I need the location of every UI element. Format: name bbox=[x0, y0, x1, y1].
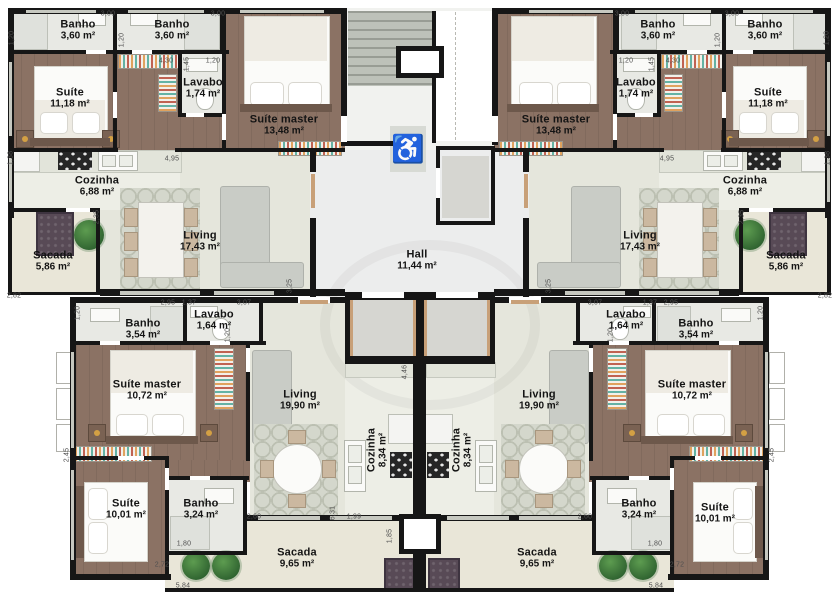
door-opening bbox=[341, 116, 347, 142]
dimension-label: 3,00 bbox=[615, 11, 629, 18]
pillow bbox=[693, 414, 725, 436]
wall bbox=[8, 292, 102, 295]
sofa bbox=[571, 186, 621, 268]
wall bbox=[310, 218, 316, 297]
dimension-label: 1,20 bbox=[225, 328, 232, 342]
dimension-label: 1,20 bbox=[824, 31, 831, 45]
elevator-car bbox=[427, 300, 487, 356]
chair bbox=[184, 258, 198, 277]
sink-basin bbox=[348, 445, 362, 463]
chair bbox=[288, 494, 306, 508]
dimension-label: 2,45 bbox=[769, 448, 776, 462]
window bbox=[128, 10, 204, 13]
door-opening bbox=[670, 468, 674, 490]
wall bbox=[657, 52, 661, 117]
stove bbox=[427, 452, 449, 478]
elevator-jamb bbox=[413, 300, 416, 356]
tree bbox=[182, 552, 210, 580]
pillow bbox=[72, 112, 100, 134]
wall bbox=[668, 574, 769, 580]
dimension-label: 1,45 bbox=[184, 57, 191, 71]
bed-headboard bbox=[240, 104, 332, 112]
dining-table bbox=[519, 444, 569, 494]
pillow bbox=[733, 488, 753, 520]
elevator-door bbox=[436, 292, 478, 298]
wall bbox=[165, 551, 247, 555]
dimension-label: 1,20 bbox=[758, 306, 765, 320]
dimension-label: 1,38 bbox=[825, 151, 832, 165]
chair bbox=[505, 460, 519, 478]
wall bbox=[721, 148, 831, 152]
room-label-tr-suite-master: Suíte master13,48 m² bbox=[522, 113, 590, 136]
shower bbox=[12, 12, 48, 50]
wall bbox=[165, 588, 421, 592]
nightstand bbox=[735, 424, 753, 442]
chair bbox=[535, 494, 553, 508]
door-opening bbox=[436, 168, 440, 198]
chair bbox=[567, 460, 581, 478]
wall bbox=[436, 221, 495, 225]
dining-table bbox=[657, 202, 703, 278]
pillow bbox=[771, 112, 799, 134]
wall bbox=[178, 52, 182, 117]
wall bbox=[592, 480, 596, 552]
door-opening bbox=[190, 476, 210, 480]
door-opening bbox=[589, 348, 593, 372]
sink-basin bbox=[119, 155, 133, 167]
sink-basin bbox=[479, 445, 493, 463]
door-opening bbox=[246, 348, 250, 372]
sink-basin bbox=[707, 155, 721, 167]
pillow bbox=[40, 112, 68, 134]
tree bbox=[212, 552, 240, 580]
stove bbox=[58, 151, 92, 170]
room-label-tr-sacada: Sacada5,86 m² bbox=[766, 249, 806, 272]
dimension-label: 2,60 bbox=[578, 514, 592, 521]
window bbox=[765, 470, 768, 560]
duct-shaft bbox=[399, 514, 441, 554]
dimension-label: 3,07 bbox=[237, 300, 251, 307]
room-label-br-cozinha: Cozinha8,34 m² bbox=[450, 428, 473, 472]
tree bbox=[599, 552, 627, 580]
door-opening bbox=[86, 50, 106, 54]
wardrobe bbox=[607, 348, 627, 410]
door-opening bbox=[492, 116, 498, 142]
dimension-label: 3,25 bbox=[287, 279, 294, 293]
dimension-label: 4,46 bbox=[402, 365, 409, 379]
window bbox=[240, 10, 324, 13]
door bbox=[300, 300, 328, 304]
dimension-label: 1,38 bbox=[8, 151, 15, 165]
dimension-label: 1,20 bbox=[715, 33, 722, 47]
room-label-tr-suite: Suíte11,18 m² bbox=[748, 86, 787, 109]
nightstand bbox=[88, 424, 106, 442]
chair bbox=[535, 430, 553, 444]
dimension-label: 3,00 bbox=[101, 11, 115, 18]
door-opening bbox=[186, 113, 204, 117]
window bbox=[447, 516, 509, 520]
sink-basin bbox=[479, 466, 493, 484]
chair bbox=[124, 258, 138, 277]
room-label-tl-living: Living17,43 m² bbox=[180, 229, 220, 252]
dimension-label: 1,20 bbox=[608, 328, 615, 342]
dimension-label: 2,82 bbox=[818, 293, 832, 300]
room-label-tl-suite-master: Suíte master13,48 m² bbox=[250, 113, 318, 136]
door-opening bbox=[66, 208, 90, 212]
window-box bbox=[769, 388, 785, 420]
wall bbox=[523, 218, 529, 297]
planter bbox=[428, 558, 460, 592]
pillow bbox=[250, 82, 284, 106]
dining-table bbox=[272, 444, 322, 494]
sink-basin bbox=[724, 155, 738, 167]
door-opening bbox=[132, 50, 152, 54]
chair bbox=[288, 430, 306, 444]
wall bbox=[183, 303, 187, 343]
chair bbox=[124, 208, 138, 227]
pillow bbox=[657, 414, 689, 436]
sink-basin bbox=[102, 155, 116, 167]
chair bbox=[124, 232, 138, 251]
bed-blanket bbox=[512, 17, 594, 61]
room-label-br-suite-master: Suíte master10,72 m² bbox=[658, 378, 726, 401]
wall bbox=[8, 216, 12, 295]
wall bbox=[592, 551, 674, 555]
door-opening bbox=[113, 92, 117, 118]
bed-headboard bbox=[507, 104, 599, 112]
window-box bbox=[769, 352, 785, 384]
fridge bbox=[388, 414, 416, 444]
window bbox=[519, 516, 581, 520]
tree bbox=[629, 552, 657, 580]
room-label-bl-living: Living19,90 m² bbox=[280, 388, 320, 411]
bed-headboard bbox=[755, 486, 763, 558]
pillow bbox=[116, 414, 148, 436]
dimension-label: 3,25 bbox=[546, 279, 553, 293]
door-opening bbox=[719, 341, 739, 345]
window bbox=[9, 62, 12, 136]
stove bbox=[390, 452, 412, 478]
pillow bbox=[557, 82, 591, 106]
chair bbox=[643, 208, 657, 227]
window bbox=[639, 291, 719, 295]
wall bbox=[494, 148, 664, 152]
elevator-jamb bbox=[487, 300, 490, 356]
pillow bbox=[733, 522, 753, 554]
window bbox=[827, 62, 830, 136]
door-opening bbox=[687, 50, 707, 54]
wall bbox=[413, 362, 426, 514]
dimension-label: 2,60 bbox=[247, 514, 261, 521]
room-label-tl-sacada: Sacada5,86 m² bbox=[33, 249, 73, 272]
nightstand bbox=[807, 130, 825, 148]
dimension-label: 2,72 bbox=[670, 562, 684, 569]
dimension-label: 2,95 bbox=[664, 300, 678, 307]
wardrobe bbox=[664, 74, 683, 112]
window bbox=[743, 10, 813, 13]
wall bbox=[175, 148, 345, 152]
stair-void bbox=[436, 11, 493, 141]
wall bbox=[491, 146, 495, 225]
dimension-label: 1,37 bbox=[643, 300, 657, 307]
door-opening bbox=[635, 113, 653, 117]
wall bbox=[259, 303, 263, 345]
door-opening bbox=[629, 476, 649, 480]
pillow bbox=[152, 414, 184, 436]
pillow bbox=[288, 82, 322, 106]
window bbox=[765, 352, 768, 448]
room-label-bl-suite: Suíte10,01 m² bbox=[106, 497, 146, 520]
dimension-label: 2,82 bbox=[7, 293, 21, 300]
wall bbox=[8, 50, 229, 54]
room-label-tr-lavabo: Lavabo1,74 m² bbox=[616, 76, 656, 99]
room-label-br-suite: Suíte10,01 m² bbox=[695, 501, 735, 524]
room-label-br-banho-354: Banho3,54 m² bbox=[678, 317, 713, 340]
room-label-tl-cozinha: Cozinha6,88 m² bbox=[75, 174, 119, 197]
kitchen-counter bbox=[426, 362, 496, 378]
dimension-label: 2,35 bbox=[94, 210, 101, 224]
sofa bbox=[220, 186, 270, 268]
elevator-jamb bbox=[424, 300, 427, 356]
window bbox=[214, 291, 274, 295]
elevator-jamb bbox=[350, 300, 353, 356]
planter bbox=[384, 558, 416, 592]
dimension-label: 4,95 bbox=[165, 156, 179, 163]
dimension-label: 3,07 bbox=[588, 300, 602, 307]
wall bbox=[413, 554, 426, 590]
door bbox=[511, 300, 539, 304]
wall bbox=[436, 146, 495, 150]
wall bbox=[610, 50, 831, 54]
sink bbox=[683, 12, 711, 26]
window bbox=[120, 291, 200, 295]
fridge bbox=[12, 151, 40, 172]
sink bbox=[721, 308, 751, 322]
window bbox=[529, 10, 613, 13]
chair bbox=[703, 208, 717, 227]
dimension-label: 1,20 bbox=[9, 31, 16, 45]
door-opening bbox=[222, 114, 226, 140]
fridge bbox=[425, 414, 453, 444]
chair bbox=[322, 460, 336, 478]
room-label-hall: Hall11,44 m² bbox=[397, 248, 436, 271]
dimension-label: 2,45 bbox=[64, 448, 71, 462]
dimension-label: 1,20 bbox=[619, 58, 633, 65]
room-label-bl-sacada: Sacada9,65 m² bbox=[277, 546, 317, 569]
door-opening bbox=[749, 208, 773, 212]
bed-headboard bbox=[30, 138, 110, 146]
dimension-label: 4,30 bbox=[159, 58, 173, 65]
dimension-label: 3,00 bbox=[725, 11, 739, 18]
window bbox=[71, 470, 74, 560]
dimension-label: 1,45 bbox=[649, 57, 656, 71]
window bbox=[565, 291, 625, 295]
wall bbox=[70, 574, 171, 580]
bed-headboard bbox=[729, 138, 809, 146]
door bbox=[524, 174, 528, 208]
room-floor-corridor bbox=[614, 115, 659, 150]
pillow bbox=[88, 522, 108, 554]
room-label-tr-banho-2: Banho3,60 m² bbox=[747, 18, 782, 41]
wall bbox=[523, 150, 529, 172]
chair bbox=[260, 460, 274, 478]
room-label-bl-suite-master: Suíte master10,72 m² bbox=[113, 378, 181, 401]
dimension-label: 3,00 bbox=[211, 11, 225, 18]
elevator-car bbox=[353, 300, 413, 356]
bed-headboard bbox=[641, 436, 733, 444]
dimension-label: 5,84 bbox=[649, 583, 663, 590]
wall bbox=[310, 150, 316, 172]
dimension-label: 2,35 bbox=[739, 210, 746, 224]
room-label-tl-banho-2: Banho3,60 m² bbox=[154, 18, 189, 41]
dimension-label: 1,80 bbox=[648, 541, 662, 548]
dimension-label: 1,80 bbox=[177, 541, 191, 548]
wall bbox=[827, 216, 831, 295]
door-opening bbox=[733, 50, 753, 54]
room-label-br-living: Living19,90 m² bbox=[519, 388, 559, 411]
chair bbox=[703, 232, 717, 251]
door-opening bbox=[613, 114, 617, 140]
chair bbox=[643, 258, 657, 277]
room-label-br-sacada: Sacada9,65 m² bbox=[517, 546, 557, 569]
sink-basin bbox=[348, 466, 362, 484]
door bbox=[311, 174, 315, 208]
dimension-label: 1,20 bbox=[119, 33, 126, 47]
dimension-label: 1,85 bbox=[387, 529, 394, 543]
chair bbox=[184, 208, 198, 227]
dimension-label: 6,31 bbox=[330, 506, 337, 520]
room-label-tl-suite: Suíte11,18 m² bbox=[50, 86, 89, 109]
duct-shaft bbox=[396, 46, 444, 78]
nightstand bbox=[200, 424, 218, 442]
dimension-label: 1,20 bbox=[75, 306, 82, 320]
room-label-bl-banho-324: Banho3,24 m² bbox=[183, 497, 218, 520]
room-label-bl-banho-354: Banho3,54 m² bbox=[125, 317, 160, 340]
chair bbox=[703, 258, 717, 277]
bed-headboard bbox=[76, 486, 84, 558]
room-floor-corridor bbox=[180, 115, 225, 150]
dimension-label: 1,99 bbox=[347, 514, 361, 521]
door-opening bbox=[100, 341, 120, 345]
nightstand bbox=[623, 424, 641, 442]
wall bbox=[418, 588, 674, 592]
window bbox=[71, 352, 74, 448]
wall bbox=[8, 148, 118, 152]
room-label-tl-lavabo: Lavabo1,74 m² bbox=[183, 76, 223, 99]
window bbox=[26, 10, 96, 13]
window bbox=[258, 516, 320, 520]
room-label-tl-banho-1: Banho3,60 m² bbox=[60, 18, 95, 41]
wall bbox=[652, 303, 656, 343]
stove bbox=[747, 151, 781, 170]
void-dashed-line bbox=[455, 12, 457, 140]
room-label-tr-banho-1: Banho3,60 m² bbox=[640, 18, 675, 41]
pillow bbox=[519, 82, 553, 106]
dimension-label: 2,95 bbox=[161, 300, 175, 307]
dimension-label: 2,72 bbox=[155, 562, 169, 569]
room-label-br-banho-324: Banho3,24 m² bbox=[621, 497, 656, 520]
bed-headboard bbox=[106, 436, 198, 444]
door-opening bbox=[695, 456, 721, 460]
wheelchair-icon: ♿ bbox=[390, 127, 426, 171]
elevator-door bbox=[362, 292, 404, 298]
bed-blanket bbox=[245, 17, 327, 61]
window bbox=[635, 10, 711, 13]
dimension-label: 1,37 bbox=[182, 300, 196, 307]
wall bbox=[576, 303, 580, 345]
room-label-tr-living: Living17,43 m² bbox=[620, 229, 660, 252]
sink bbox=[90, 308, 120, 322]
pillow bbox=[739, 112, 767, 134]
door-opening bbox=[118, 456, 144, 460]
floor-plan: ♿ Banho3,60 m²Banho3,60 m²Suíte11,18 m²L… bbox=[0, 0, 839, 600]
elevator-car bbox=[442, 156, 489, 218]
door-opening bbox=[722, 92, 726, 118]
dimension-label: 5,84 bbox=[176, 583, 190, 590]
wardrobe bbox=[214, 348, 234, 410]
dimension-label: 4,95 bbox=[660, 156, 674, 163]
wardrobe bbox=[158, 74, 177, 112]
door-opening bbox=[165, 468, 169, 490]
dining-table bbox=[138, 202, 184, 278]
dimension-label: 4,30 bbox=[666, 58, 680, 65]
dimension-label: 1,20 bbox=[206, 58, 220, 65]
room-label-bl-cozinha: Cozinha8,34 m² bbox=[365, 428, 388, 472]
room-label-tr-cozinha: Cozinha6,88 m² bbox=[723, 174, 767, 197]
